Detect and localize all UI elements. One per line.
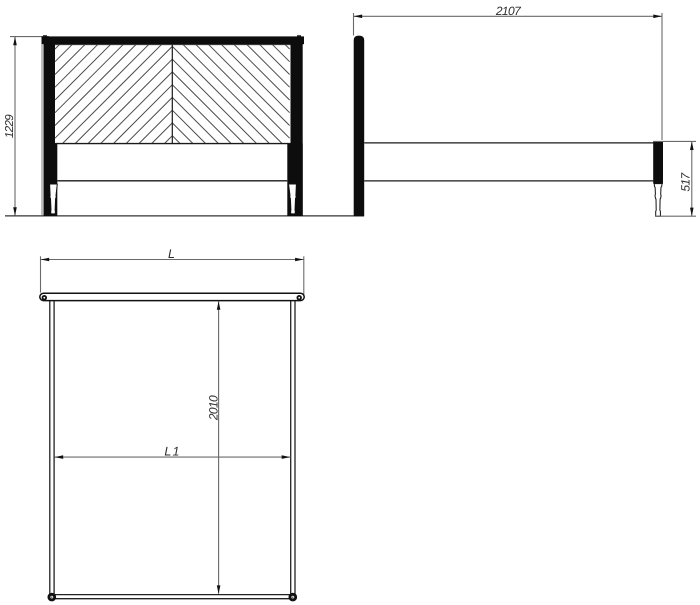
svg-text:2010: 2010 bbox=[206, 395, 220, 421]
svg-text:517: 517 bbox=[679, 171, 693, 191]
svg-text:2107: 2107 bbox=[495, 4, 522, 18]
svg-text:L: L bbox=[168, 247, 175, 261]
svg-text:L1: L1 bbox=[164, 444, 180, 458]
svg-text:1229: 1229 bbox=[4, 114, 16, 138]
